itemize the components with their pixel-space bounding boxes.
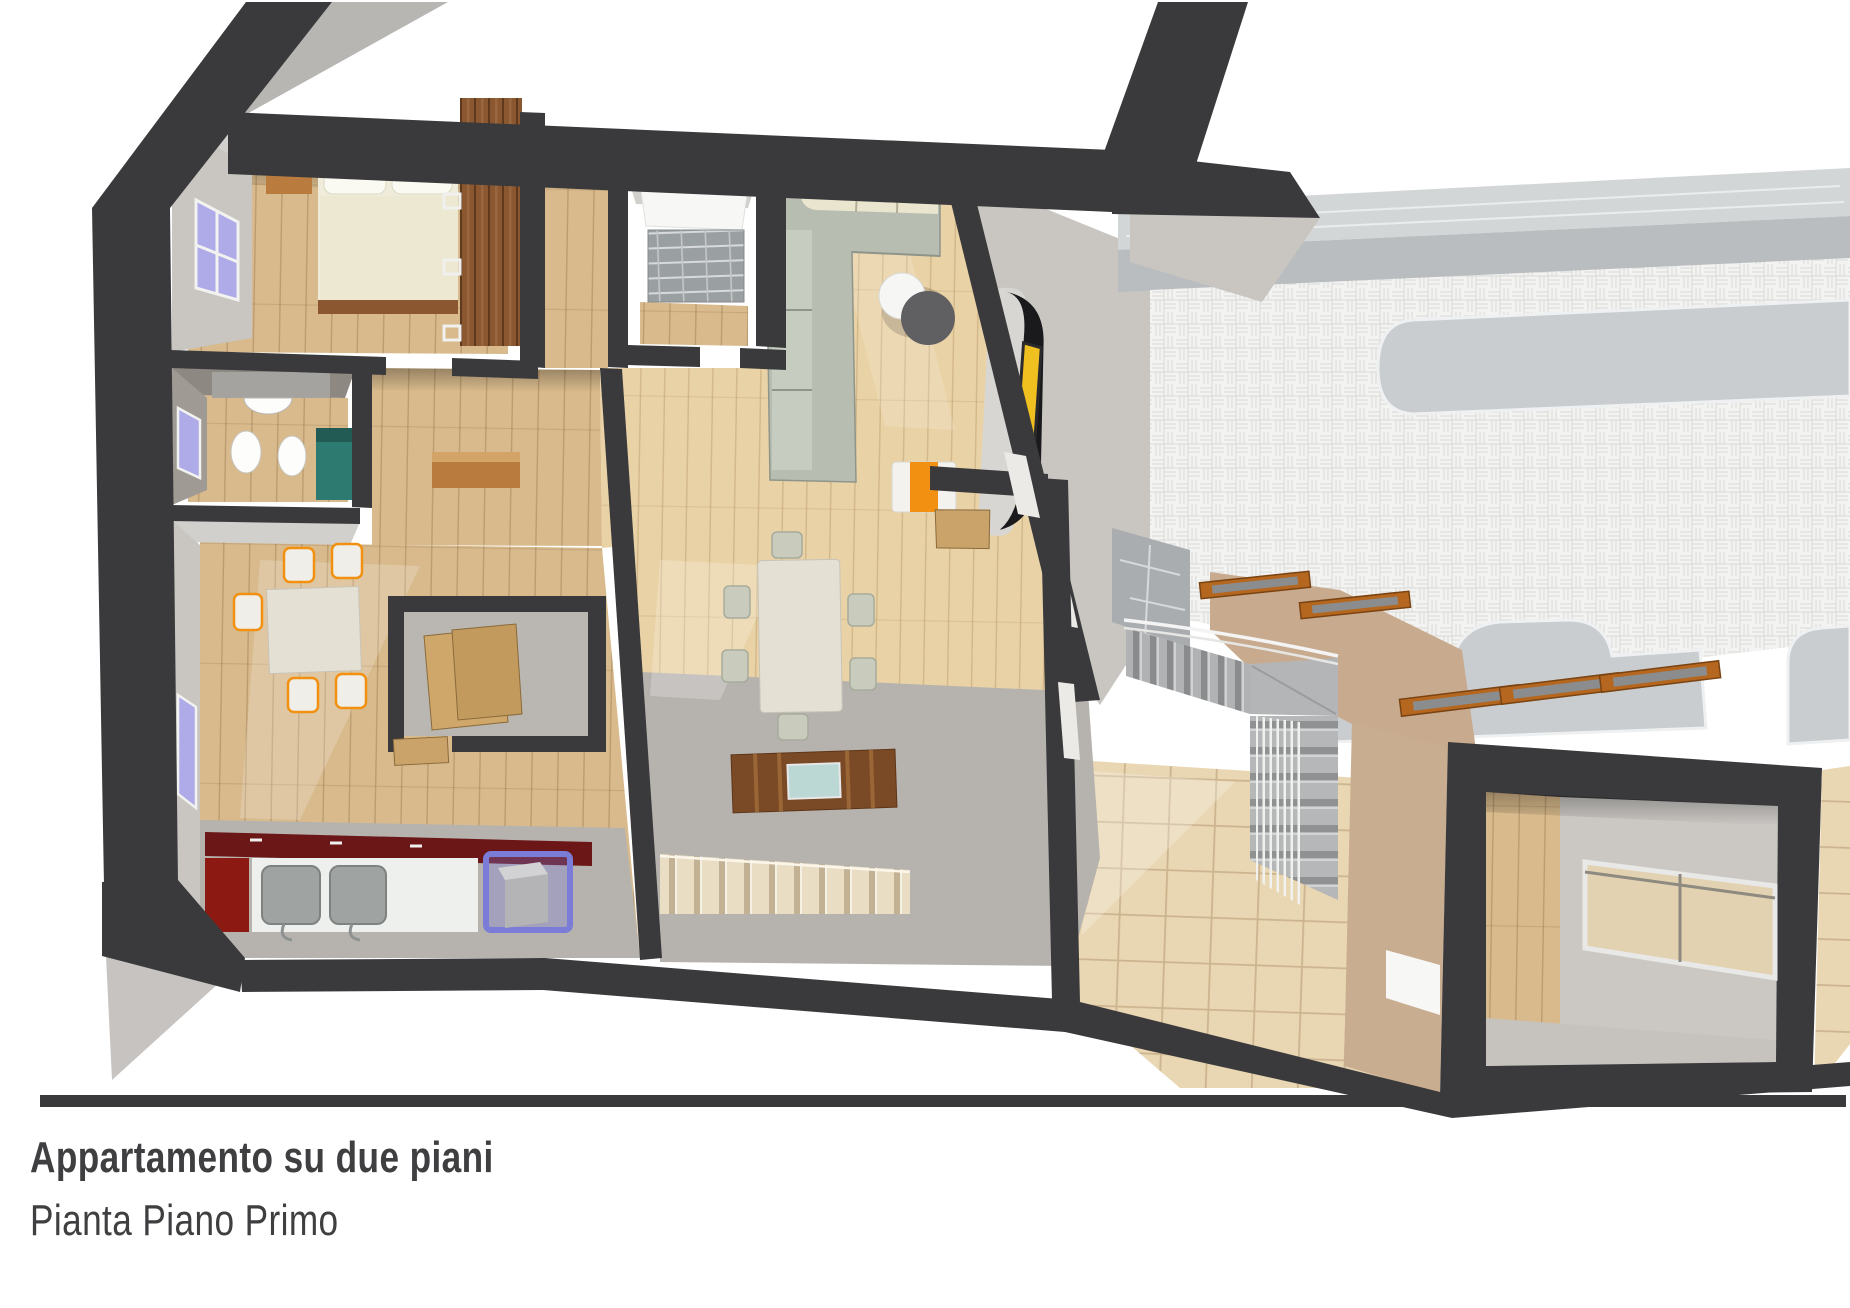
stairwell-grid-railing (648, 230, 744, 302)
dining-table-kitchen (267, 586, 362, 673)
corridor-sideboard-top (432, 452, 520, 462)
wall-entry-west (608, 130, 628, 368)
dining-table (758, 559, 843, 712)
corridor-north-strip (545, 175, 608, 368)
wall-entry-east (756, 150, 786, 348)
stone-bench-right (1788, 626, 1850, 744)
bed-duvet (320, 196, 458, 300)
side-table-dark (901, 291, 955, 345)
stair-slat-fence (1256, 716, 1300, 905)
wall-bedroom-east (520, 112, 545, 368)
closet-wall-s (452, 736, 606, 752)
wall-west (92, 208, 178, 886)
shower-unit-top (316, 428, 354, 442)
plan-subtitle: Pianta Piano Primo (30, 1196, 339, 1246)
toilet (231, 431, 261, 473)
kitchen-north-wall-face (172, 520, 360, 545)
stone-planter (1378, 300, 1850, 414)
kitchen-window (178, 695, 196, 808)
bidet (278, 436, 306, 476)
wall-bathroom-south (170, 505, 360, 524)
storage-closet (388, 596, 606, 765)
closet-wall-w (388, 596, 404, 752)
floor-plan-render (0, 0, 1850, 1308)
closet-sliding-door (393, 737, 448, 766)
vanity-counter (212, 372, 330, 398)
wall-entry-south-right (740, 348, 786, 370)
closet-wall-n (388, 596, 604, 612)
kitchen-sink (330, 866, 386, 924)
hall-door-leaf (931, 502, 995, 556)
bathroom-window (178, 408, 200, 478)
wall-bathroom-east (352, 368, 372, 508)
closet-wood-plank (452, 624, 522, 720)
entry-floor (640, 302, 748, 346)
kitchen-sink (262, 866, 320, 924)
cutaway-side-wall (1344, 722, 1448, 1094)
bed-foot-rail (318, 300, 458, 314)
floor-plan-page: Appartamento su due piani Pianta Piano P… (0, 0, 1850, 1308)
title-rule (40, 1095, 1846, 1107)
plan-title: Appartamento su due piani (30, 1133, 494, 1183)
bathroom (172, 368, 355, 505)
closet-wall-e (588, 596, 606, 752)
coffee-table (731, 749, 897, 813)
glass-cube-inner (505, 874, 548, 928)
wall-entry-south-left (628, 345, 700, 367)
